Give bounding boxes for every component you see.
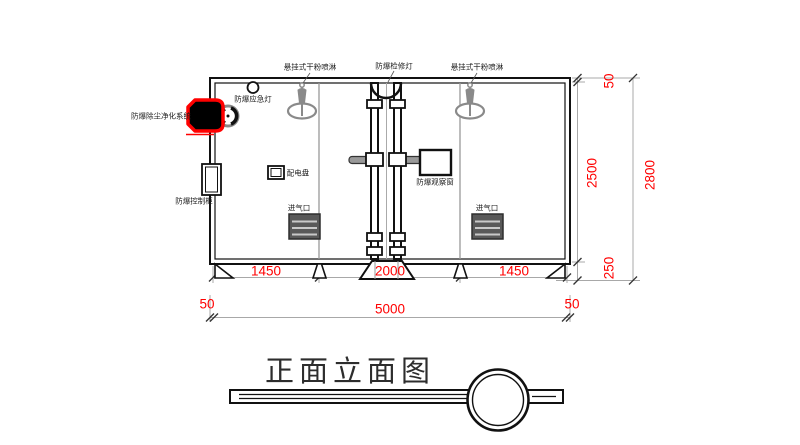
label-air-inlet-left: 进气口 bbox=[288, 204, 311, 212]
dim-right-2800: 2800 bbox=[643, 160, 657, 190]
label-observation-window: 防爆观察窗 bbox=[416, 178, 454, 186]
air-inlet-vent-left bbox=[289, 214, 320, 239]
label-distribution-panel: 配电盘 bbox=[287, 169, 310, 177]
label-dust-purifier: 防爆除尘净化系统 bbox=[131, 112, 191, 120]
elevation-drawing-page: 悬挂式干粉喷淋 防爆检修灯 悬挂式干粉喷淋 防爆应急灯 防爆除尘净化系统 防爆控… bbox=[0, 0, 800, 445]
dim-bottom-5000: 5000 bbox=[375, 302, 405, 316]
label-sprinkler-right: 悬挂式干粉喷淋 bbox=[451, 63, 504, 71]
dim-right-50: 50 bbox=[602, 73, 616, 88]
label-air-inlet-right: 进气口 bbox=[476, 204, 499, 212]
emergency-lamp-icon bbox=[248, 82, 259, 93]
air-inlet-vent-right bbox=[472, 214, 503, 239]
dim-right-2500: 2500 bbox=[585, 158, 599, 188]
dim-bottom-1450-left: 1450 bbox=[251, 264, 281, 278]
drawing-title: 正面立面图 bbox=[265, 348, 435, 390]
distribution-panel-icon bbox=[268, 166, 284, 179]
label-inspection-lamp: 防爆检修灯 bbox=[375, 62, 413, 70]
label-sprinkler-left: 悬挂式干粉喷淋 bbox=[284, 63, 337, 71]
dim-bottom-50-left: 50 bbox=[199, 297, 214, 311]
dim-bottom-1450-right: 1450 bbox=[499, 264, 529, 278]
label-control-cabinet: 防爆控制柜 bbox=[175, 197, 213, 205]
dim-right-250: 250 bbox=[602, 257, 616, 280]
dust-purifier-icon bbox=[186, 100, 223, 135]
dim-bottom-2000: 2000 bbox=[375, 264, 405, 278]
observation-window-icon bbox=[420, 150, 451, 175]
control-cabinet-icon bbox=[202, 164, 221, 195]
dim-bottom-50-right: 50 bbox=[564, 297, 579, 311]
label-emergency-lamp: 防爆应急灯 bbox=[234, 95, 272, 103]
